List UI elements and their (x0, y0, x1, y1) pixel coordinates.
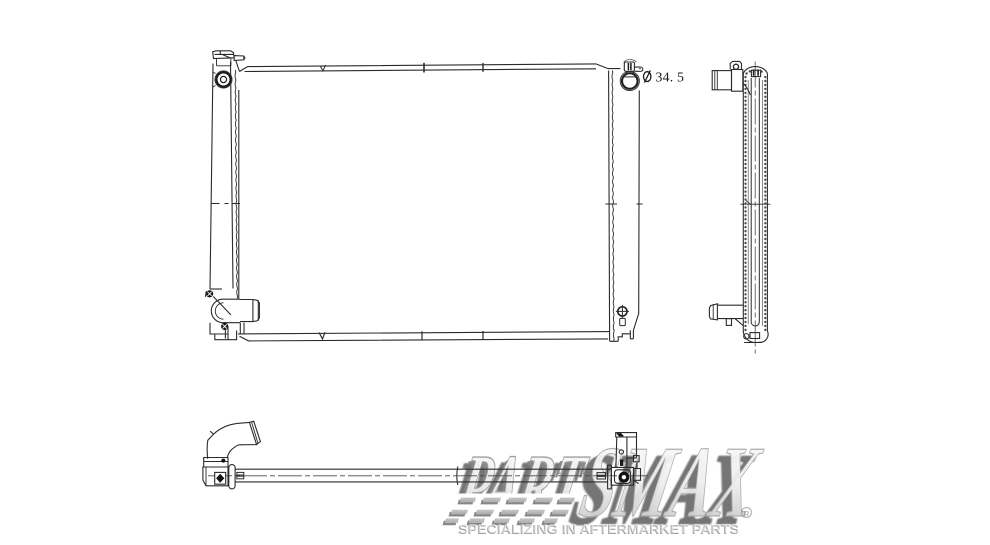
svg-text:SPECIALIZING IN AFTERMARKET PA: SPECIALIZING IN AFTERMARKET PARTS (459, 522, 740, 536)
svg-text:R: R (744, 510, 750, 519)
svg-text:34. 5: 34. 5 (656, 69, 685, 84)
